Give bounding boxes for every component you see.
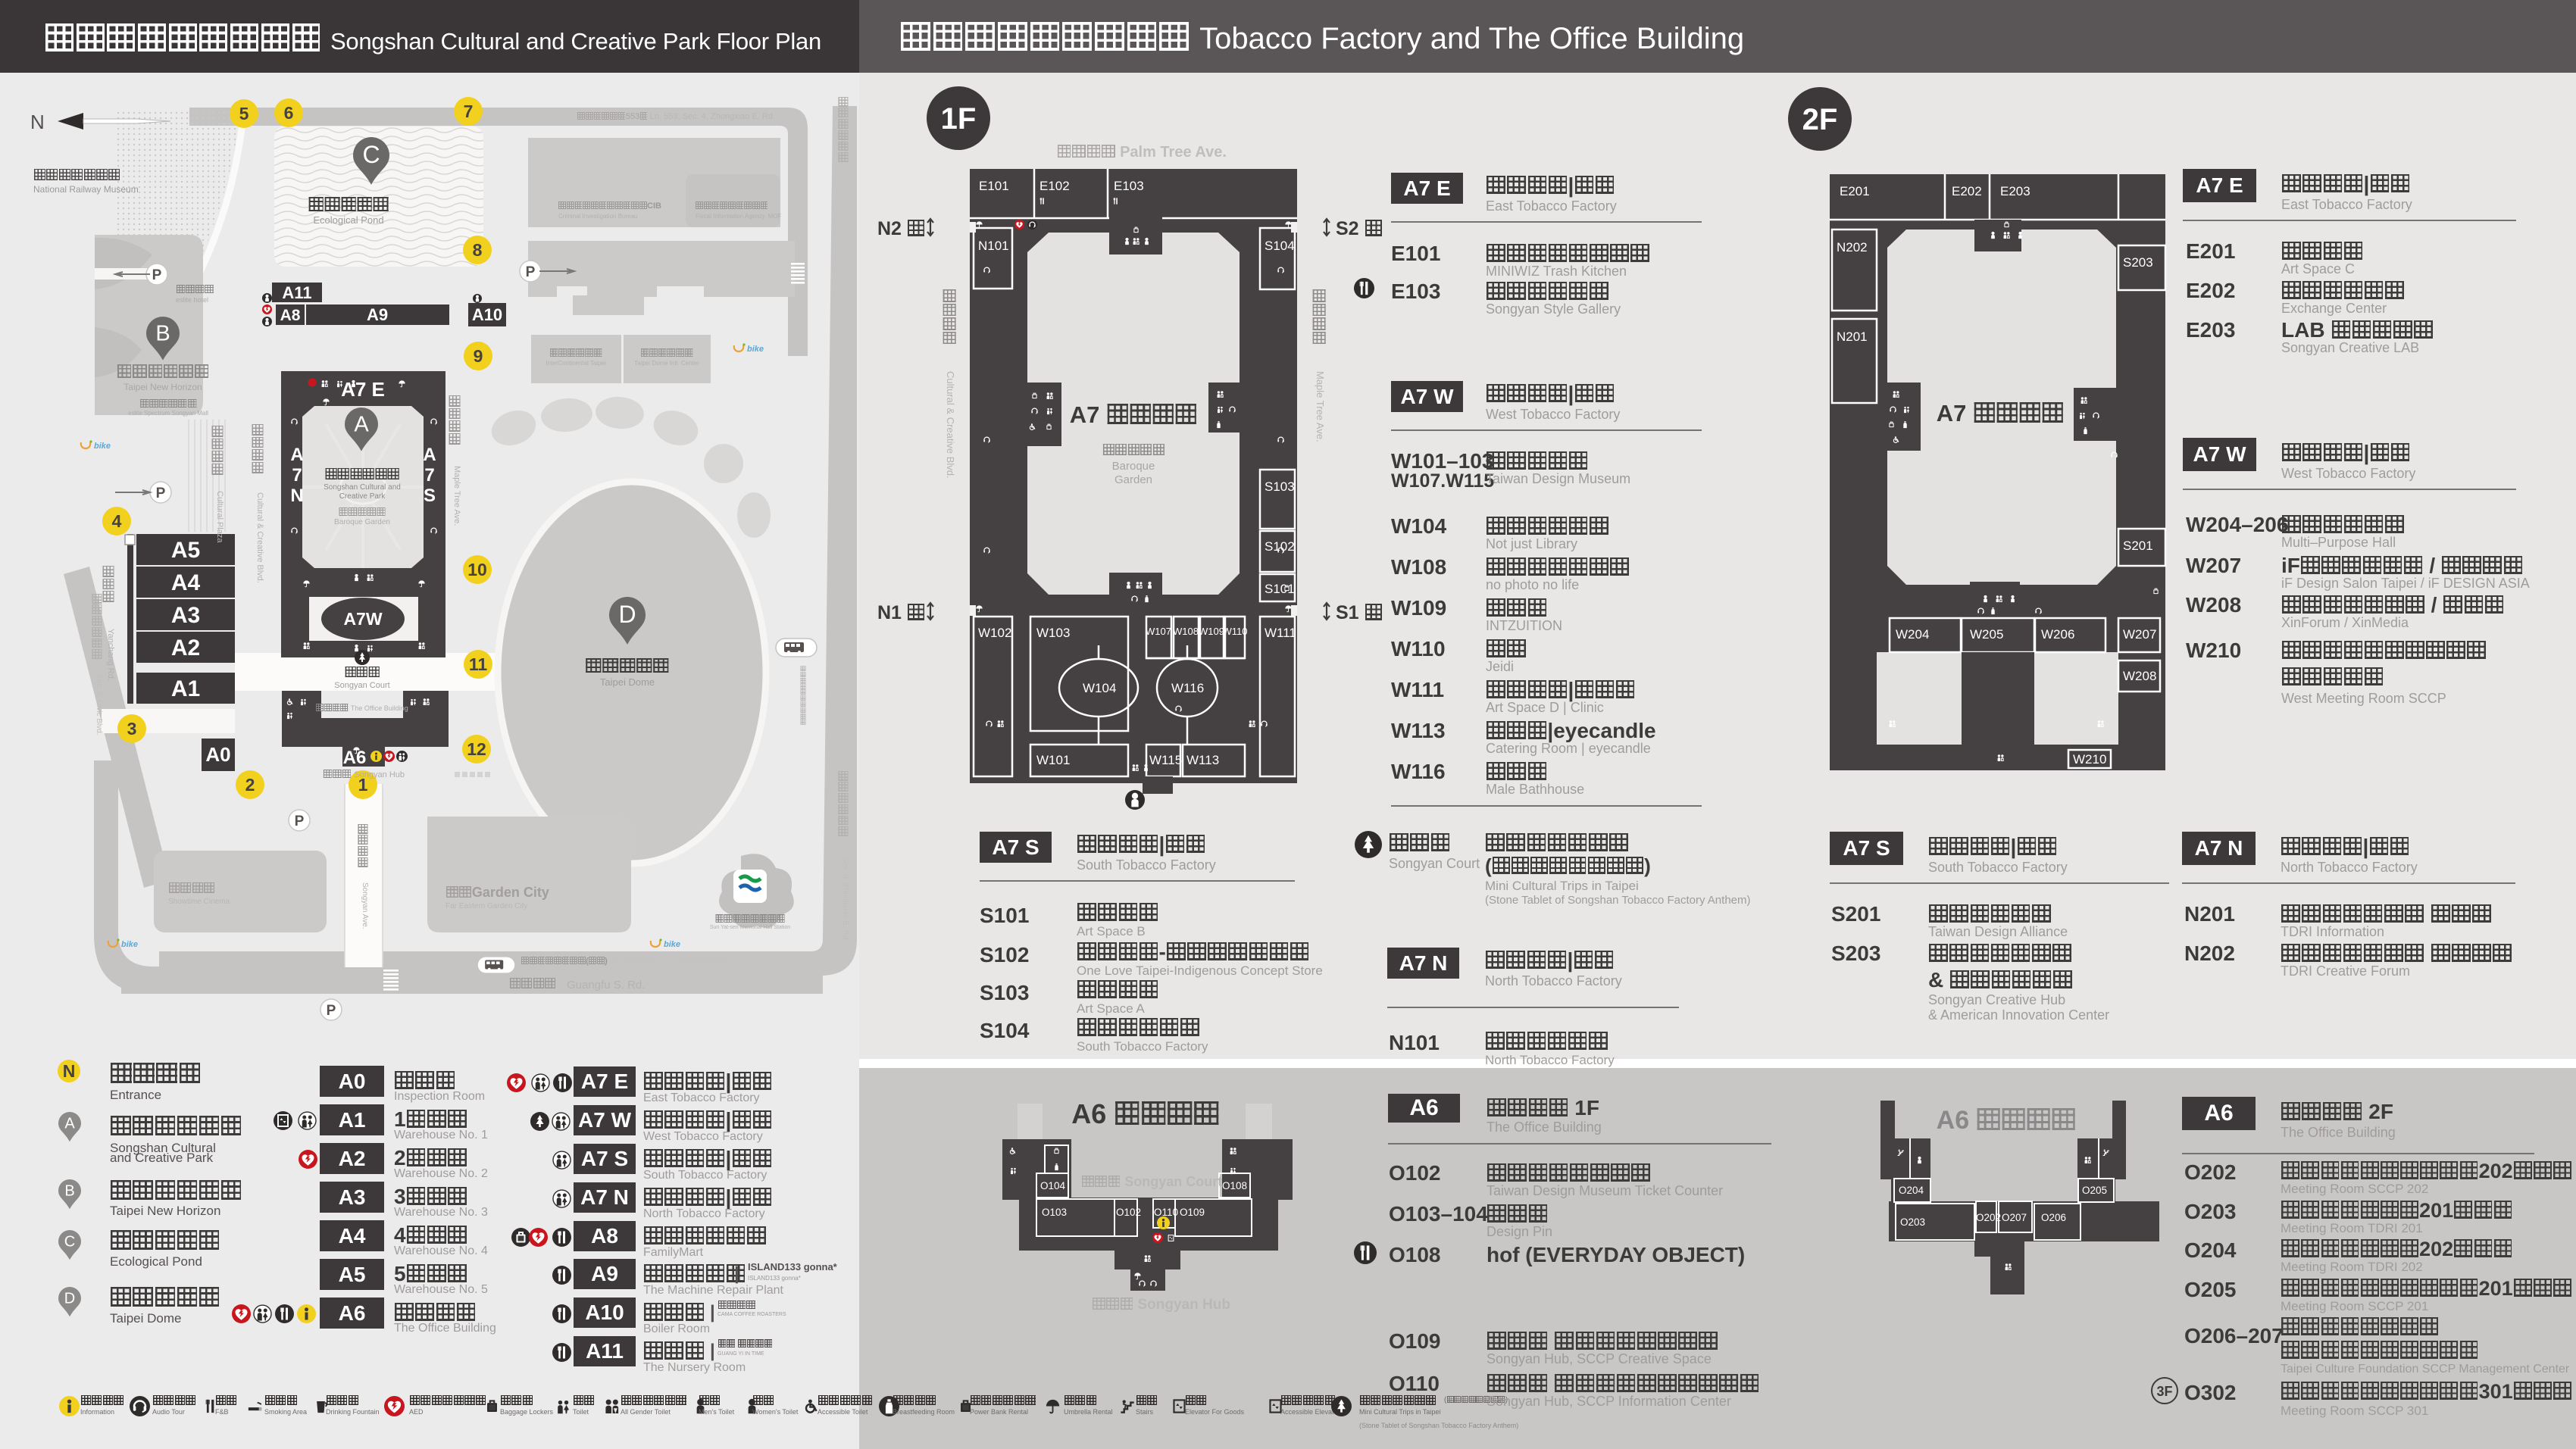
svg-text:12: 12 [467,739,486,759]
svg-text:bike: bike [121,940,138,949]
svg-text:W115: W115 [1149,753,1182,767]
svg-text:W109: W109 [1199,626,1224,637]
svg-text:W207: W207 [2123,627,2156,642]
svg-text:B: B [155,321,170,345]
svg-text:7: 7 [464,101,474,121]
svg-text:9: 9 [474,346,483,366]
svg-text:O109: O109 [1180,1207,1205,1218]
svg-text:P: P [526,264,536,280]
svg-text:2: 2 [245,775,255,795]
svg-text:E101: E101 [979,179,1009,193]
svg-text:6: 6 [284,103,294,123]
svg-text:W110: W110 [1223,626,1248,637]
svg-text:A: A [354,412,369,436]
svg-text:7: 7 [292,465,302,486]
svg-text:D: D [64,1290,75,1307]
svg-text:C: C [362,141,380,168]
svg-text:S201: S201 [2123,539,2153,553]
svg-text:W111: W111 [1265,626,1296,640]
svg-text:D: D [618,601,636,628]
svg-text:S104: S104 [1265,239,1295,253]
svg-text:N: N [290,486,303,506]
svg-text:O202: O202 [1976,1212,2001,1223]
svg-text:O204: O204 [1899,1185,1924,1196]
svg-text:4: 4 [112,511,122,531]
svg-text:O102: O102 [1116,1207,1141,1218]
svg-text:E202: E202 [1952,184,1982,198]
svg-text:W113: W113 [1186,753,1219,767]
svg-text:A: A [423,445,436,465]
svg-text:S103: S103 [1265,479,1295,494]
svg-text:A1: A1 [171,676,200,701]
svg-text:W210: W210 [2073,752,2106,767]
svg-text:W107: W107 [1146,626,1171,637]
svg-text:S203: S203 [2123,255,2153,270]
svg-text:A5: A5 [171,538,200,563]
svg-text:5: 5 [239,104,249,123]
svg-text:3F: 3F [2156,1384,2172,1399]
svg-text:bike: bike [664,940,680,949]
svg-text:P: P [152,267,162,283]
svg-text:W208: W208 [2123,669,2156,683]
svg-text:W104: W104 [1083,681,1116,695]
svg-text:8: 8 [473,240,483,260]
svg-text:11: 11 [469,654,488,674]
svg-text:E201: E201 [1840,184,1870,198]
svg-text:10: 10 [467,560,487,579]
svg-text:A: A [64,1115,75,1132]
svg-text:A7 E: A7 E [341,378,385,401]
svg-text:W206: W206 [2041,627,2074,642]
svg-text:N: N [30,111,45,133]
svg-text:A11: A11 [282,283,311,302]
svg-text:B: B [64,1182,74,1199]
svg-text:P: P [327,1003,336,1019]
svg-text:A9: A9 [367,305,388,324]
svg-text:bike: bike [747,345,764,354]
svg-text:E103: E103 [1114,179,1144,193]
svg-text:3: 3 [127,719,137,739]
svg-text:C: C [64,1233,75,1250]
svg-text:O104: O104 [1040,1180,1066,1191]
svg-text:P: P [295,814,305,829]
svg-text:E203: E203 [2000,184,2030,198]
svg-text:O207: O207 [2002,1212,2027,1223]
svg-text:W103: W103 [1036,626,1070,640]
svg-text:W116: W116 [1171,681,1204,695]
svg-text:A: A [290,445,303,465]
svg-text:N202: N202 [1837,240,1868,255]
svg-text:W108: W108 [1173,626,1199,637]
svg-text:W204: W204 [1896,627,1929,642]
svg-text:N: N [63,1061,76,1081]
svg-text:N101: N101 [978,239,1009,253]
svg-text:A3: A3 [171,603,200,628]
svg-text:O203: O203 [1900,1216,1925,1228]
svg-text:A4: A4 [171,570,201,595]
svg-text:A8: A8 [280,307,301,324]
svg-text:S: S [424,486,436,506]
svg-text:O108: O108 [1222,1180,1247,1191]
svg-text:W102: W102 [978,626,1011,640]
svg-text:W205: W205 [1970,627,2003,642]
svg-text:E102: E102 [1039,179,1070,193]
svg-text:A7W: A7W [343,609,382,629]
svg-text:P: P [156,486,166,501]
svg-text:A10: A10 [472,305,502,324]
svg-text:O103: O103 [1042,1207,1067,1218]
svg-text:bike: bike [94,442,111,451]
svg-text:O205: O205 [2082,1185,2107,1196]
svg-text:A2: A2 [171,635,200,660]
svg-text:W101: W101 [1036,753,1070,767]
svg-text:A0: A0 [205,743,230,766]
svg-text:O206: O206 [2041,1212,2066,1223]
svg-text:N201: N201 [1837,329,1868,344]
svg-text:7: 7 [424,465,434,486]
